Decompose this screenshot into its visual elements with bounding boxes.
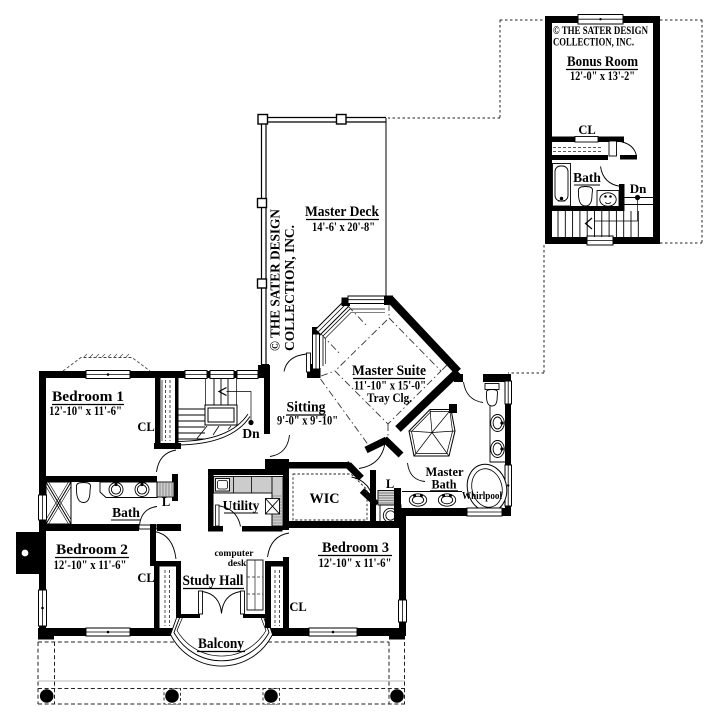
svg-text:Utility: Utility [223,498,260,513]
svg-text:COLLECTION, INC.: COLLECTION, INC. [282,225,297,351]
svg-text:Bath: Bath [573,170,601,185]
svg-text:CL: CL [289,600,306,614]
svg-text:CL: CL [137,420,154,434]
svg-text:L: L [386,477,394,491]
svg-text:Bedroom 3: Bedroom 3 [322,540,389,556]
svg-text:Whirlpool: Whirlpool [462,491,502,502]
svg-text:12'-10" x 11'-6": 12'-10" x 11'-6" [49,404,122,418]
svg-text:Bedroom 1: Bedroom 1 [52,389,124,405]
svg-text:© THE SATER DESIGN: © THE SATER DESIGN [553,25,649,37]
svg-text:Dn: Dn [630,181,647,196]
svg-text:L: L [162,495,170,509]
svg-text:12'-10" x 11'-6": 12'-10" x 11'-6" [319,556,392,570]
svg-text:Bonus Room: Bonus Room [567,54,638,70]
svg-text:desk: desk [228,559,247,569]
svg-text:WIC: WIC [310,491,340,507]
svg-text:12'-10" x 11'-6": 12'-10" x 11'-6" [54,558,127,572]
svg-text:Dn: Dn [242,426,260,441]
svg-text:Study Hall: Study Hall [183,573,244,589]
svg-text:computer: computer [214,549,254,559]
svg-text:12'-0" x 13'-2": 12'-0" x 13'-2" [570,69,635,83]
svg-text:© THE SATER DESIGN: © THE SATER DESIGN [268,209,283,351]
svg-text:14'-6' x 20'-8": 14'-6' x 20'-8" [312,220,375,234]
svg-text:Master Deck: Master Deck [305,204,380,220]
svg-text:9'-0" x 9'-10": 9'-0" x 9'-10" [277,414,338,428]
svg-text:Master Suite: Master Suite [352,363,426,379]
svg-text:Tray Clg.: Tray Clg. [367,391,412,405]
svg-text:Bath: Bath [432,477,458,492]
svg-text:COLLECTION, INC.: COLLECTION, INC. [553,37,634,49]
svg-text:Bedroom 2: Bedroom 2 [56,542,128,558]
svg-text:CL: CL [578,123,595,137]
svg-text:Bath: Bath [112,505,140,520]
svg-text:CL: CL [137,571,154,585]
svg-text:Balcony: Balcony [198,636,244,652]
